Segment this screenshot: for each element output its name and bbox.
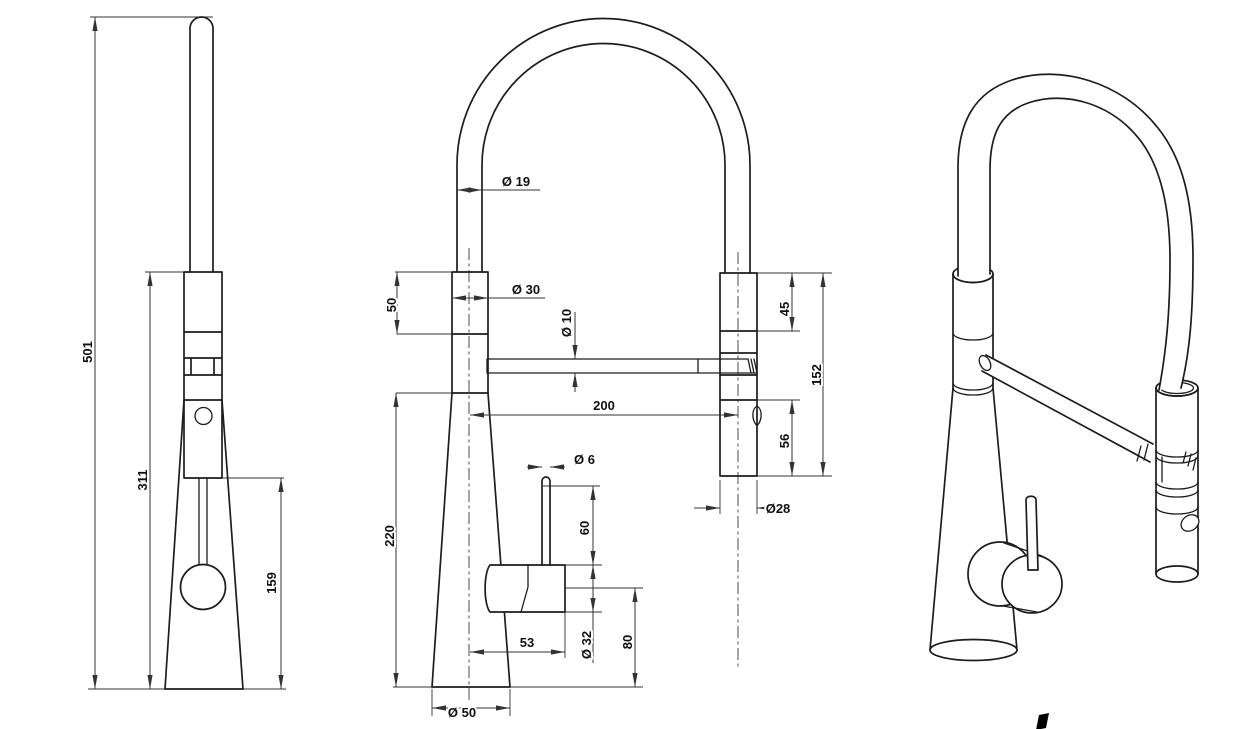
- dim-dia32: Ø 32: [579, 565, 594, 663]
- handle-pivot-hole: [195, 408, 212, 425]
- dim-dia10-label: Ø 10: [559, 309, 574, 337]
- arm-3d-fill: [982, 355, 1153, 462]
- dim-dia19-label: Ø 19: [502, 174, 530, 189]
- lever-ball-side: [181, 565, 226, 610]
- perspective-view: [930, 74, 1202, 729]
- cone-3d-fill: [930, 388, 1017, 650]
- logo-mark: [1036, 713, 1049, 729]
- dim-220-label: 220: [382, 525, 397, 547]
- sprayhead-front-outline: [720, 273, 757, 476]
- lever-rod-3d: [1026, 496, 1038, 570]
- dim-80-label: 80: [620, 635, 635, 649]
- dim-56-label: 56: [777, 434, 792, 448]
- cone-front-outline: [432, 393, 510, 687]
- dim-152-label: 152: [809, 364, 824, 386]
- spray-arm-front: [487, 359, 757, 373]
- side-view: 501 311 159: [80, 17, 286, 689]
- dim-60: 60: [577, 486, 593, 565]
- front-dimension-view: Ø 19 Ø 30 50 Ø 10 200 45 152: [382, 18, 832, 720]
- dim-159: 159: [264, 478, 281, 689]
- dim-311-label: 311: [135, 470, 150, 491]
- dim-200: 200: [470, 398, 738, 415]
- dim-56: 56: [777, 400, 792, 476]
- ext-lines-side: [88, 17, 286, 689]
- lever-side-outline: [199, 478, 207, 565]
- head-3d-bottom-rim: [1156, 566, 1198, 582]
- dim-dia28-label: Ø28: [766, 501, 791, 516]
- dim-dia10: Ø 10: [559, 309, 575, 392]
- dim-53-label: 53: [520, 635, 534, 650]
- dim-dia32-label: Ø 32: [579, 631, 594, 659]
- dim-200-label: 200: [593, 398, 615, 413]
- dim-311: 311: [135, 272, 150, 689]
- side-handle-knob-front: [485, 565, 565, 612]
- dim-501: 501: [80, 17, 95, 689]
- dim-60-label: 60: [577, 521, 592, 535]
- lever-rod-front: [542, 477, 550, 565]
- dim-dia50: Ø 50: [432, 705, 510, 720]
- cone-3d-base: [930, 640, 1017, 661]
- dim-220: 220: [382, 393, 397, 687]
- technical-drawing: 501 311 159: [0, 0, 1254, 729]
- dim-dia30: Ø 30: [452, 282, 545, 298]
- dim-80: 80: [620, 588, 635, 687]
- arm-thread-ticks: [748, 359, 757, 373]
- body-front-outline: [452, 272, 488, 393]
- dim-dia6: Ø 6: [527, 452, 595, 467]
- dim-dia6-label: Ø 6: [574, 452, 595, 467]
- dim-159-label: 159: [264, 572, 279, 594]
- dim-50: 50: [384, 272, 399, 334]
- dim-dia28: Ø28: [694, 501, 790, 516]
- head-3d-fill: [1156, 388, 1198, 582]
- dim-45-label: 45: [777, 302, 792, 316]
- cone-side-outline: [165, 400, 243, 689]
- dim-45: 45: [777, 273, 792, 331]
- hose-side-outline: [190, 17, 213, 272]
- arch-hose-outline: [457, 18, 750, 273]
- ext-lines-front: [393, 272, 832, 716]
- dim-53: 53: [470, 635, 565, 652]
- dim-501-label: 501: [80, 341, 95, 363]
- dim-50-label: 50: [384, 298, 399, 312]
- dim-dia30-label: Ø 30: [512, 282, 540, 297]
- dim-dia50-label: Ø 50: [448, 705, 476, 720]
- drawing-canvas: 501 311 159: [0, 0, 1254, 729]
- body-side-outline: [184, 272, 222, 478]
- dim-dia19: Ø 19: [457, 174, 540, 190]
- dim-152: 152: [809, 273, 824, 476]
